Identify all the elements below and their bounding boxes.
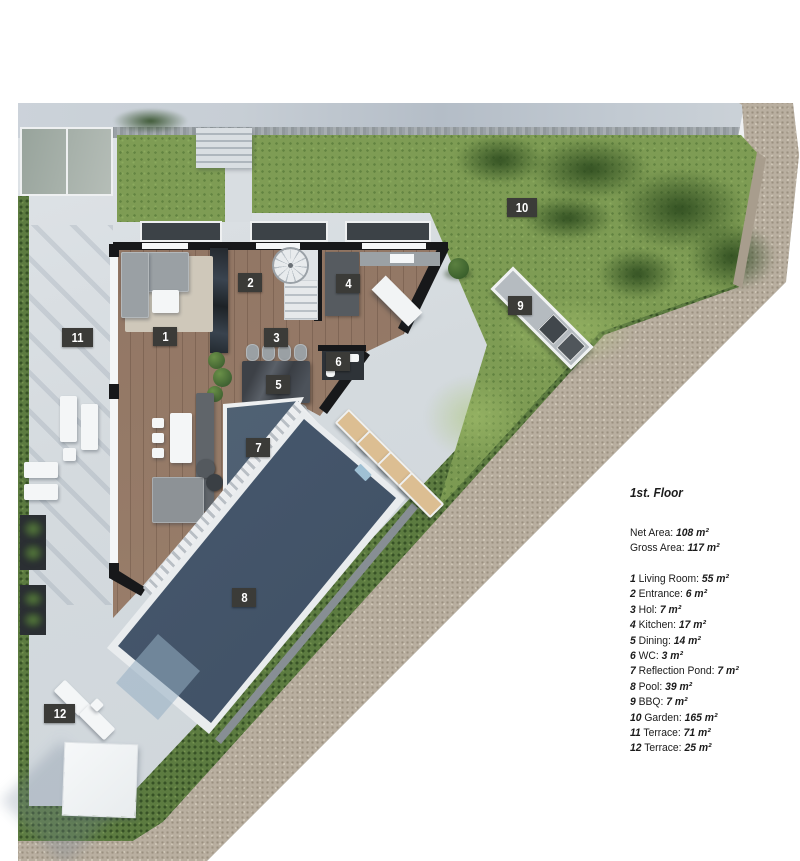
sofa-chaise (121, 252, 149, 318)
street-steps (196, 128, 252, 168)
floor-plan-page: 1 2 3 4 5 6 7 8 9 10 11 12 1st. Floor Ne… (0, 0, 800, 861)
grill (206, 474, 223, 491)
coffee-table (152, 290, 179, 313)
legend: 1st. Floor Net Area: 108 m² Gross Area: … (630, 486, 785, 757)
marker-2: 2 (238, 273, 262, 292)
outdoor-chair (152, 418, 164, 428)
window-top (362, 243, 426, 249)
room-line: 3 Hol: 7 m² (630, 603, 785, 618)
skylight-divider (66, 127, 68, 196)
room-line: 12 Terrace: 25 m² (630, 741, 785, 756)
net-area-label: Net Area: (630, 527, 673, 539)
marker-6: 6 (326, 352, 350, 371)
room-line: 10 Garden: 165 m² (630, 711, 785, 726)
room-line: 5 Dining: 14 m² (630, 634, 785, 649)
marker-8: 8 (232, 588, 256, 607)
room-line: 1 Living Room: 55 m² (630, 572, 785, 587)
window-top (256, 243, 300, 249)
room-line: 8 Pool: 39 m² (630, 680, 785, 695)
marker-10: 10 (507, 198, 537, 217)
planter-plant (22, 590, 44, 608)
bush (598, 248, 678, 300)
gross-area-line: Gross Area: 117 m² (630, 541, 785, 556)
skylight-band (345, 221, 431, 242)
terrace-chair (24, 484, 58, 500)
outdoor-chair (152, 448, 164, 458)
stair-flight (284, 280, 318, 320)
net-area-value: 108 m² (676, 527, 709, 539)
outdoor-table (170, 413, 192, 463)
wall-post (109, 244, 119, 257)
planter-plant (22, 519, 44, 539)
skylight-band (140, 221, 222, 242)
ball-shrub (448, 258, 469, 279)
marker-7: 7 (246, 438, 270, 457)
marker-9: 9 (508, 296, 532, 315)
gross-area-label: Gross Area: (630, 542, 685, 554)
marker-4: 4 (336, 274, 360, 293)
skylight-glass (20, 127, 113, 196)
outdoor-sofa (152, 477, 204, 523)
dining-chair (246, 344, 259, 361)
net-area-line: Net Area: 108 m² (630, 526, 785, 541)
spiral-stair-pole (288, 263, 293, 268)
planter-box (20, 585, 46, 635)
room-line: 11 Terrace: 71 m² (630, 726, 785, 741)
spiral-stair (274, 249, 307, 282)
kitchen-sink (390, 254, 414, 263)
legend-title: 1st. Floor (630, 486, 785, 500)
marker-3: 3 (264, 328, 288, 347)
bush (688, 222, 776, 292)
planter-plant (22, 611, 44, 629)
marker-1: 1 (153, 327, 177, 346)
indoor-plant (213, 368, 232, 387)
terrace-lounger (81, 404, 98, 450)
planter-box (20, 515, 46, 570)
skylight-band (250, 221, 328, 242)
terrace-lounger (60, 396, 77, 442)
planter-plant (22, 543, 44, 563)
room-line: 2 Entrance: 6 m² (630, 587, 785, 602)
room-list: 1 Living Room: 55 m² 2 Entrance: 6 m² 3 … (630, 572, 785, 757)
bush-overhang (113, 108, 188, 134)
outdoor-chair (152, 433, 164, 443)
terrace-side-table (63, 448, 76, 461)
canopy (63, 743, 137, 817)
gross-area-value: 117 m² (687, 542, 719, 554)
room-line: 6 WC: 3 m² (630, 649, 785, 664)
dining-chair (294, 344, 307, 361)
indoor-plant (208, 352, 225, 369)
marker-11: 11 (62, 328, 93, 347)
room-line: 9 BBQ: 7 m² (630, 695, 785, 710)
marker-12: 12 (44, 704, 75, 723)
wall-post (109, 384, 119, 399)
terrace-chair (24, 462, 58, 478)
room-line: 7 Reflection Pond: 7 m² (630, 664, 785, 679)
room-line: 4 Kitchen: 17 m² (630, 618, 785, 633)
glass-wall-left (110, 250, 118, 580)
window-top (142, 243, 188, 249)
grass-highlight (425, 375, 525, 460)
marker-5: 5 (266, 375, 290, 394)
